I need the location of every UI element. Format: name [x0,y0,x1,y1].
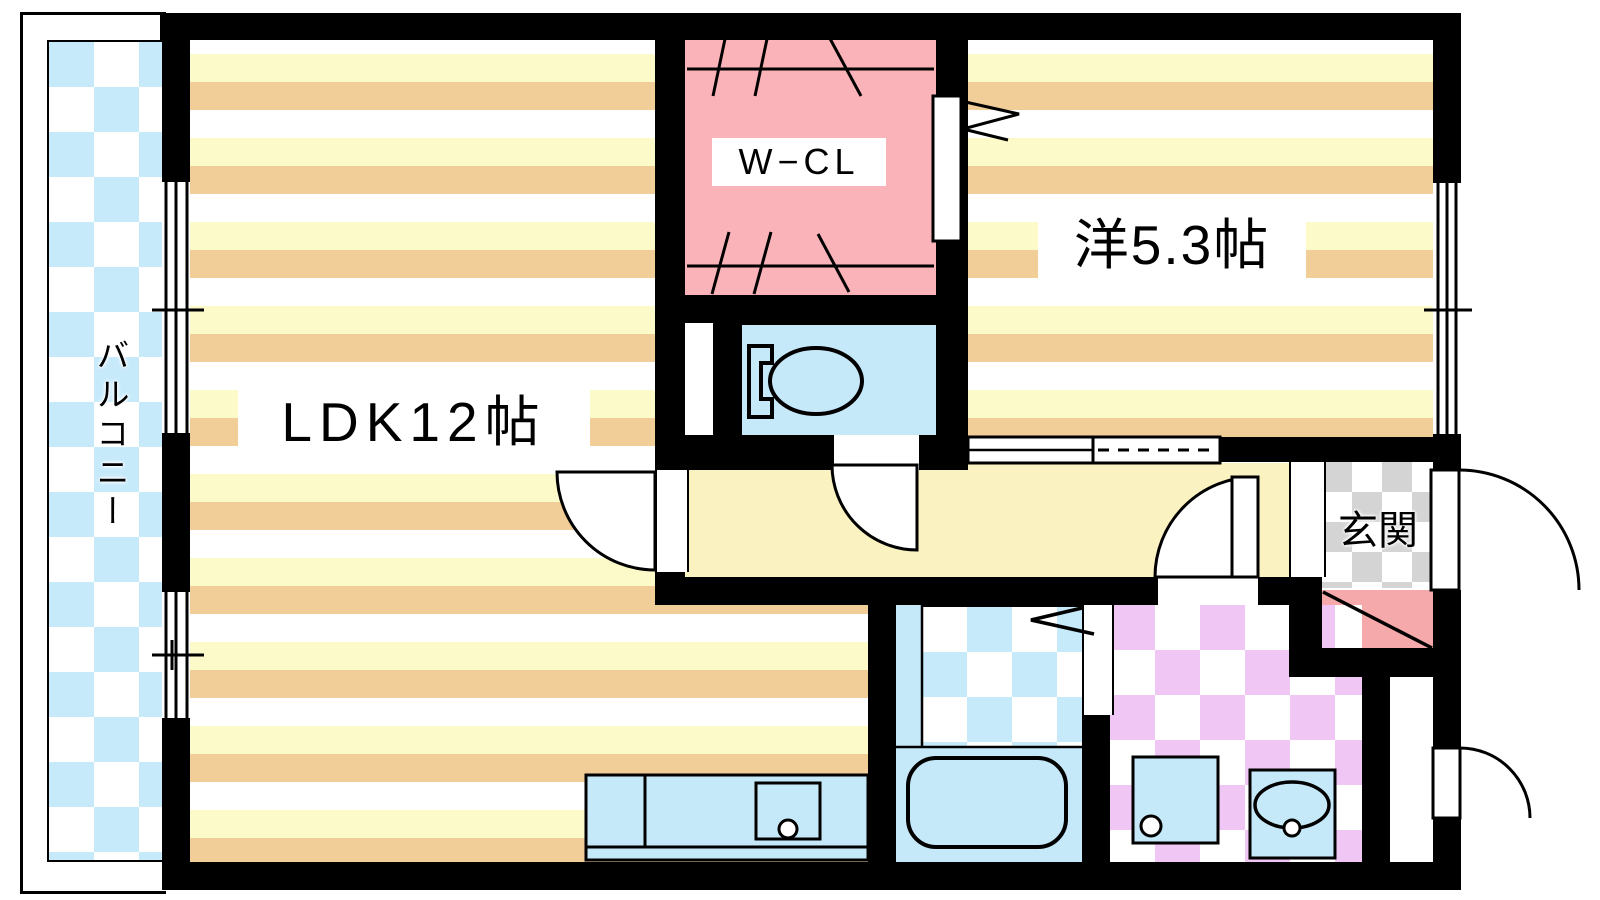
sliding-door [968,437,1220,463]
kitchen-counter [586,775,868,860]
bathtub-icon [896,605,1082,847]
label-balcony: バルコニー [86,338,134,533]
label-ldk: LDK12帖 [238,380,590,454]
floor-plan: LDK12帖 洋5.3帖 W−CL 玄関 バルコニー [0,0,1600,900]
swing-door-arc-toilet [832,465,917,550]
service-door [1433,748,1530,818]
closet-door [933,96,1019,241]
label-entrance: 玄関 [1325,498,1431,556]
folding-door-icon [1031,608,1094,634]
label-western-room: 洋5.3帖 [1038,202,1306,278]
toilet-icon [749,346,862,417]
entrance-door [1431,470,1579,590]
swing-door-washroom [1155,477,1258,577]
shoe-cabinet-diagonal [1323,592,1432,648]
vanity-sink-icon [1250,770,1335,858]
swing-door-arc-ldk [557,472,655,570]
label-walk-in-closet: W−CL [712,138,886,186]
washing-machine-icon [1133,757,1218,843]
